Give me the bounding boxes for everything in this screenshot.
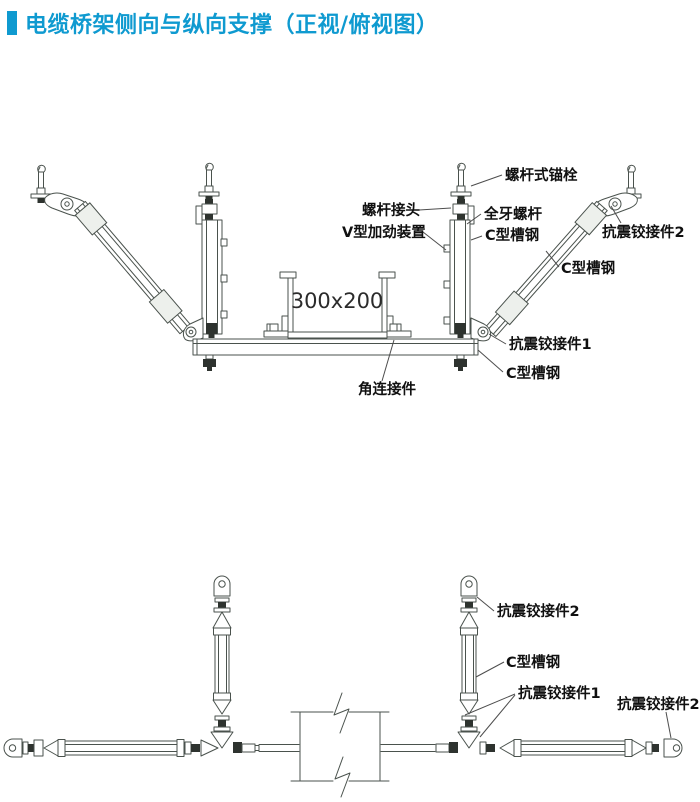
label-v-stiffener: V型加劲装置: [342, 223, 426, 241]
label-hinge2: 抗震铰接件2: [602, 223, 685, 241]
label-corner-connector: 角连接件: [358, 380, 416, 398]
label-channel-hanger: C型槽钢: [485, 226, 539, 244]
label-plan-hinge2-right: 抗震铰接件2: [617, 695, 700, 713]
support-diagram: 300x200: [0, 0, 700, 802]
eye-plate-right: [664, 739, 682, 757]
cable-tray: 300x200: [264, 272, 411, 338]
plan-channel-left: [58, 740, 184, 757]
leader-hinge1: [489, 334, 506, 344]
label-channel-diagonal: C型槽钢: [561, 259, 615, 277]
leader-rod-coupler: [419, 208, 451, 210]
label-plan-hinge2-top: 抗震铰接件2: [497, 602, 580, 620]
leader-anchor-bolt: [471, 175, 502, 186]
rail-hinge-right: [471, 318, 491, 341]
label-threaded-rod: 全牙螺杆: [483, 205, 542, 223]
front-view-diagram: 300x200: [31, 163, 685, 398]
label-rod-coupler: 螺杆接头: [362, 201, 420, 219]
eye-plate-left: [4, 739, 22, 757]
label-anchor-bolt: 螺杆式锚栓: [505, 166, 578, 184]
hanger-assembly-right: [444, 163, 474, 338]
tray-size-label: 300x200: [291, 289, 384, 313]
break-symbol: [291, 693, 389, 797]
label-hinge1: 抗震铰接件1: [509, 335, 592, 353]
label-plan-hinge1: 抗震铰接件1: [518, 684, 601, 702]
page: 电缆桥架侧向与纵向支撑（正视/俯视图）: [0, 0, 700, 802]
plan-view-diagram: 抗震铰接件2 C型槽钢 抗震铰接件1 抗震铰接件2: [4, 576, 700, 797]
anchor-bolt-right-hanger: [451, 163, 471, 201]
leader-channel-hanger: [471, 236, 482, 240]
leader-plan-hinge2-top: [477, 597, 494, 611]
rail-channel: [193, 339, 478, 371]
plan-vertical-right: [458, 576, 480, 748]
leader-v-stiffener: [423, 232, 446, 250]
leader-channel-rail: [478, 350, 503, 372]
anchor-bolt-left-hanger: [199, 163, 219, 201]
corner-connector-left: [264, 316, 288, 337]
diagonal-channel-left: [73, 200, 193, 336]
label-plan-channel: C型槽钢: [506, 653, 560, 671]
leader-plan-channel: [476, 662, 504, 677]
plan-vertical-left: [211, 576, 259, 753]
corner-connector-right: [387, 316, 411, 337]
plan-channel-right: [514, 740, 632, 757]
hanger-assembly-left: [196, 163, 227, 338]
label-channel-rail: C型槽钢: [506, 364, 560, 382]
leader-plan-hinge2-right: [666, 712, 671, 738]
